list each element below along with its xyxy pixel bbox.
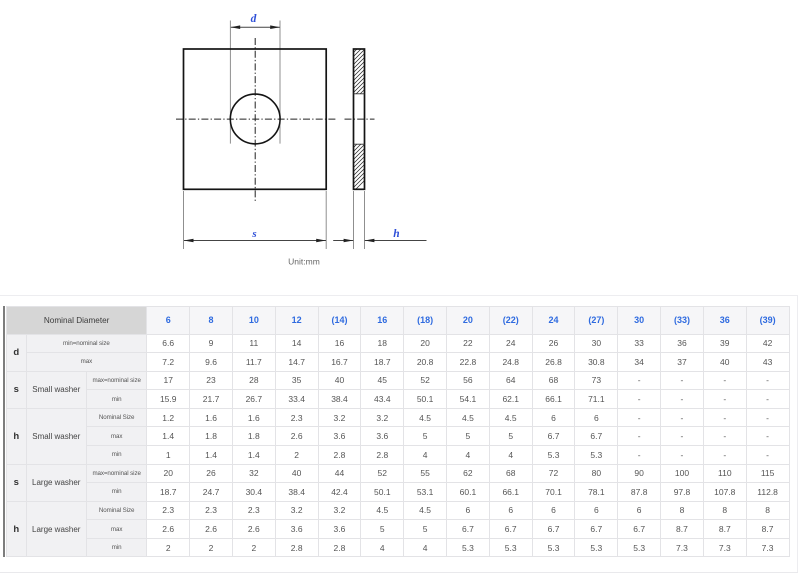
svg-text:h: h <box>393 228 399 240</box>
svg-text:Unit:mm: Unit:mm <box>288 257 320 267</box>
svg-text:d: d <box>251 13 257 25</box>
svg-text:s: s <box>251 228 256 240</box>
